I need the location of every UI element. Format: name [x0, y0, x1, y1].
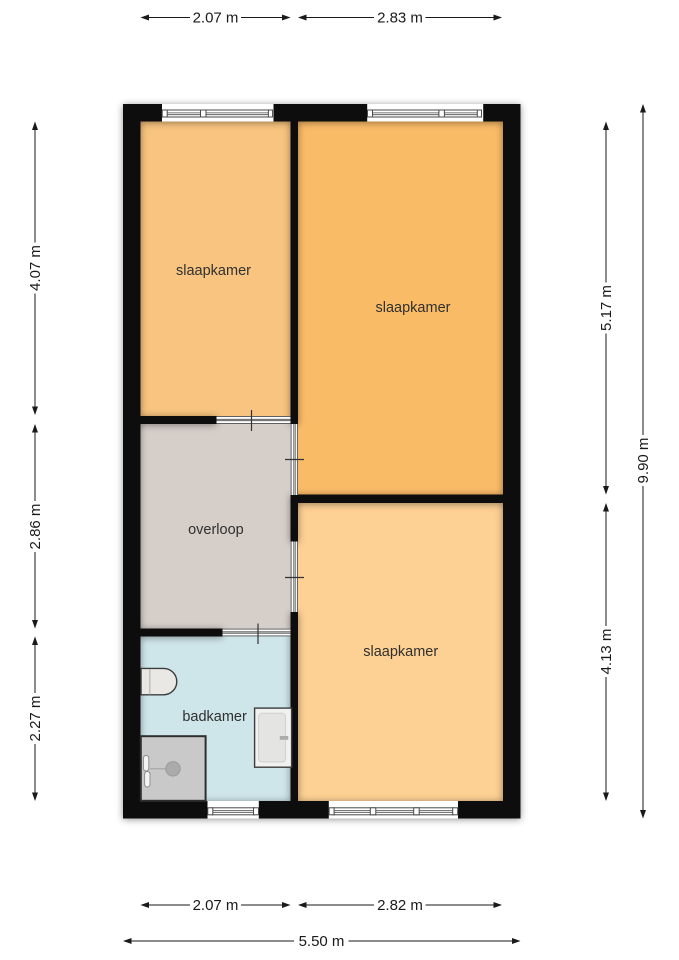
svg-text:slaapkamer: slaapkamer [176, 263, 251, 279]
svg-text:2.07 m: 2.07 m [193, 897, 239, 914]
svg-text:2.27 m: 2.27 m [27, 696, 44, 742]
svg-text:2.83 m: 2.83 m [377, 10, 423, 27]
svg-text:9.90 m: 9.90 m [635, 438, 652, 484]
svg-text:4.07 m: 4.07 m [27, 245, 44, 291]
svg-text:badkamer: badkamer [182, 709, 247, 725]
svg-text:5.17 m: 5.17 m [598, 285, 615, 331]
svg-text:2.82 m: 2.82 m [377, 897, 423, 914]
svg-text:2.86 m: 2.86 m [27, 504, 44, 550]
svg-text:4.13 m: 4.13 m [598, 629, 615, 675]
svg-text:overloop: overloop [188, 522, 244, 538]
svg-text:5.50 m: 5.50 m [299, 933, 345, 950]
svg-text:slaapkamer: slaapkamer [363, 644, 438, 660]
svg-text:slaapkamer: slaapkamer [376, 300, 451, 316]
svg-text:2.07 m: 2.07 m [193, 10, 239, 27]
